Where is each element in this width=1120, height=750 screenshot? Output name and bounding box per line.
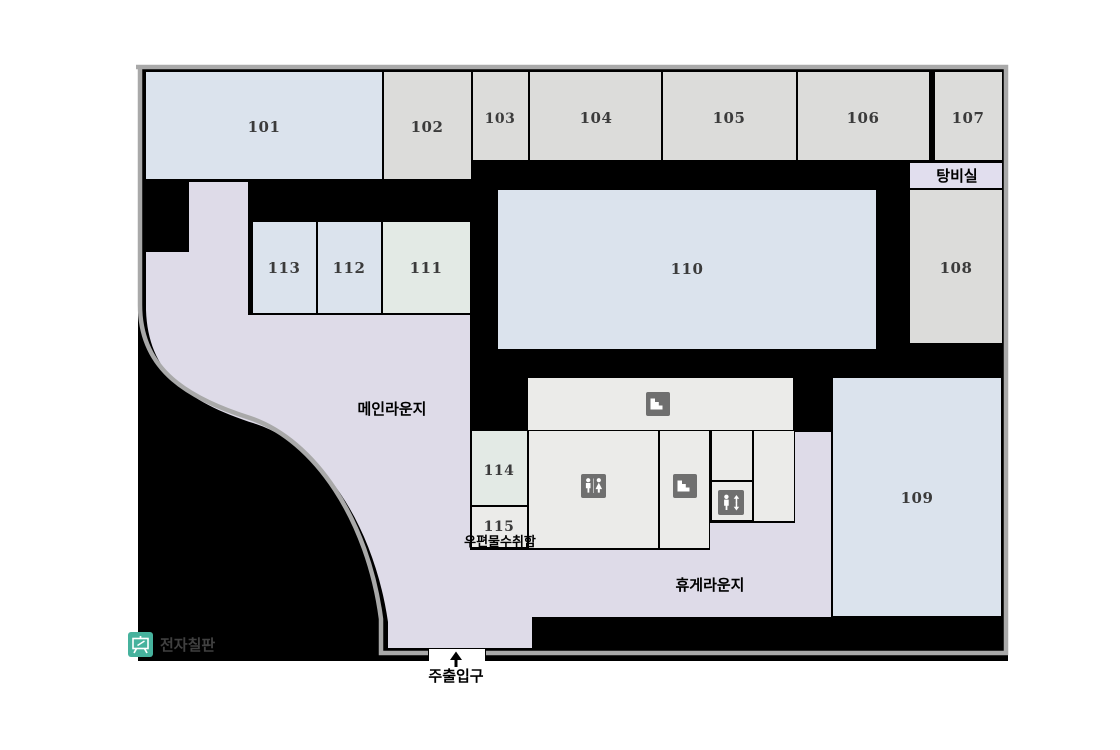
utility-room-upper[interactable]: [712, 431, 752, 480]
room-106-label: 106: [847, 109, 880, 127]
room-104-label: 104: [580, 109, 613, 127]
room-101-label: 101: [248, 118, 281, 136]
elevator-icon: [718, 490, 744, 515]
room-107-label: 107: [952, 109, 985, 127]
pantry-label: 탕비실: [936, 167, 977, 185]
stairs-icon: [646, 392, 670, 416]
electronic-board-label: 전자칠판: [160, 637, 215, 654]
room-103-label: 103: [485, 111, 516, 127]
room-111-label: 111: [410, 259, 443, 277]
electronic-board-icon: [128, 632, 153, 657]
room-115-label: 115: [484, 519, 515, 535]
floor-plan-svg: 101 102 103 104 105 106 107 108 109 110 …: [0, 0, 1120, 750]
room-108-label: 108: [940, 259, 973, 277]
room-113-label: 113: [268, 259, 301, 277]
room-110-label: 110: [671, 260, 704, 278]
main-lounge-label: 메인라운지: [357, 400, 426, 418]
restroom-icon: [581, 474, 606, 498]
rest-lounge-label: 휴게라운지: [675, 577, 744, 594]
room-109-label: 109: [901, 489, 934, 507]
mailbox-label: 우편물수취함: [464, 534, 536, 549]
room-105-label: 105: [713, 109, 746, 127]
room-114-label: 114: [484, 463, 515, 479]
main-entrance-label: 주출입구: [428, 668, 483, 685]
stairs-icon: [673, 474, 697, 498]
utility-room-right[interactable]: [754, 431, 794, 521]
room-112-label: 112: [333, 259, 366, 277]
room-102-label: 102: [411, 118, 444, 136]
floor-plan-page: 101 102 103 104 105 106 107 108 109 110 …: [0, 0, 1120, 750]
